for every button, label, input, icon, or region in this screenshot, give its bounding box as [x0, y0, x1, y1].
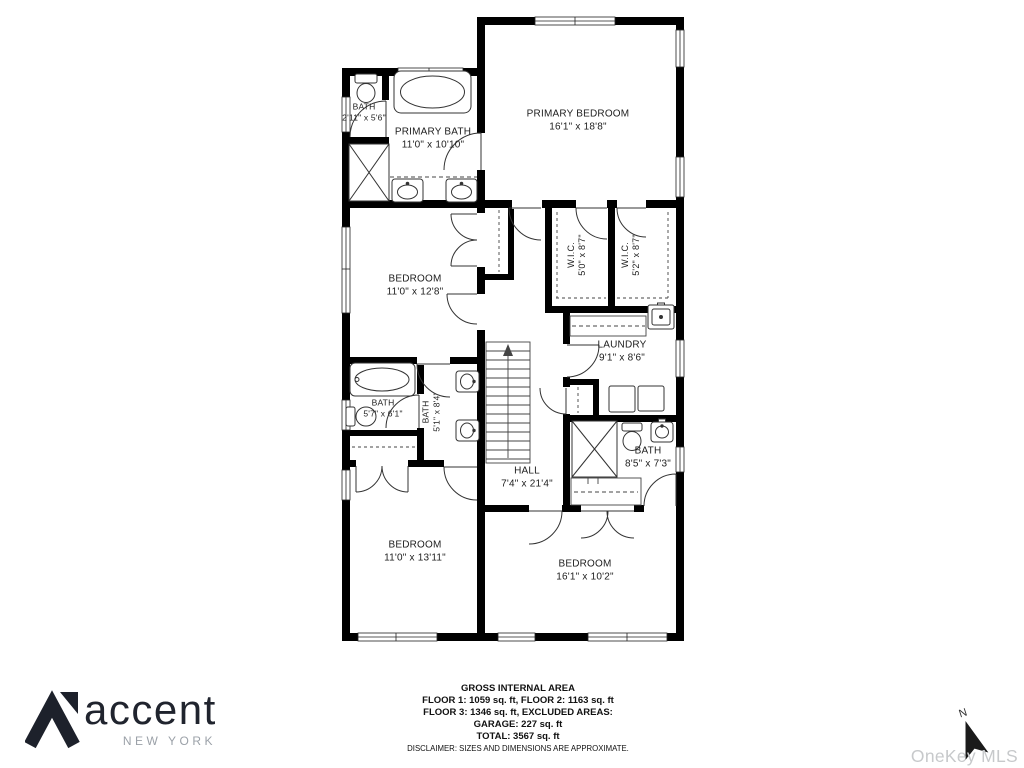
- window: [498, 633, 535, 641]
- sink-icon: [446, 179, 477, 202]
- shower-icon: [349, 144, 389, 201]
- window: [676, 447, 684, 472]
- room-label-bedroom-4: BEDROOM16'1" x 10'2": [556, 559, 613, 584]
- window: [676, 340, 684, 377]
- door: [617, 208, 646, 237]
- room-label-bath-wc: BATH2'11" x 5'6": [342, 101, 386, 122]
- area-summary: GROSS INTERNAL AREA FLOOR 1: 1059 sq. ft…: [312, 683, 724, 754]
- room-label-bath-4: BATH5'1" x 8'4": [420, 392, 441, 431]
- room-label-laundry: LAUNDRY9'1" x 8'6": [597, 340, 646, 365]
- sink-icon: [392, 179, 423, 202]
- bathtub-icon: [394, 71, 471, 113]
- brand-name: accent: [84, 688, 217, 732]
- area-summary-disclaimer: DISCLAIMER: SIZES AND DIMENSIONS ARE APP…: [312, 743, 724, 754]
- floor-plan-drawing: N: [0, 0, 1024, 768]
- door: [529, 511, 562, 544]
- closet-door: [356, 466, 382, 492]
- window: [342, 470, 350, 500]
- room-label-hall: HALL7'4" x 21'4": [501, 466, 553, 491]
- sink-icon: [456, 371, 479, 392]
- area-summary-line: FLOOR 1: 1059 sq. ft, FLOOR 2: 1163 sq. …: [312, 695, 724, 707]
- closet-door: [382, 466, 408, 492]
- dryer-icon: [638, 386, 664, 411]
- room-label-wic-2: W.I.C.5'2" x 8'7": [620, 234, 643, 276]
- door: [444, 467, 477, 500]
- window: [342, 227, 350, 313]
- window: [358, 633, 437, 641]
- sink-icon: [651, 419, 673, 442]
- room-label-bath-3: BATH5'7" x 6'1": [363, 397, 402, 418]
- room-label-bedroom-2: BEDROOM11'0" x 12'8": [387, 274, 444, 299]
- brand-subtitle: NEW YORK: [84, 734, 216, 748]
- bathtub-icon: [350, 363, 415, 396]
- window: [535, 17, 615, 25]
- laundry-sink-icon: [648, 303, 674, 329]
- closet-door: [451, 240, 477, 266]
- brand-logo: accent NEW YORK: [25, 686, 225, 756]
- floor-plan-page: N BATH2'11" x 5'6" PRIMARY BATH11'0" x 1…: [0, 0, 1024, 768]
- washer-icon: [609, 386, 635, 412]
- double-door: [607, 511, 634, 538]
- door: [447, 294, 477, 324]
- sink-icon: [456, 420, 479, 441]
- closet: [571, 478, 641, 505]
- brand-chevron-icon: [25, 686, 81, 750]
- closet-door: [451, 214, 477, 240]
- room-label-bath-5: BATH8'5" x 7'3": [625, 446, 671, 471]
- window: [676, 157, 684, 197]
- toilet-icon: [355, 74, 377, 103]
- double-door: [581, 511, 608, 538]
- area-summary-line: TOTAL: 3567 sq. ft: [312, 731, 724, 743]
- room-label-primary-bath: PRIMARY BATH11'0" x 10'10": [395, 127, 471, 152]
- window: [676, 30, 684, 67]
- area-summary-line: FLOOR 3: 1346 sq. ft, EXCLUDED AREAS:: [312, 707, 724, 719]
- room-label-bedroom-3: BEDROOM11'0" x 13'11": [384, 540, 446, 565]
- room-label-wic-1: W.I.C.5'0" x 8'7": [566, 234, 589, 276]
- mls-watermark: OneKey MLS: [900, 746, 1018, 767]
- staircase: [486, 342, 530, 463]
- window: [588, 633, 667, 641]
- door: [644, 474, 676, 506]
- compass-label: N: [957, 706, 968, 720]
- door: [567, 345, 599, 377]
- area-summary-line: GARAGE: 227 sq. ft: [312, 719, 724, 731]
- shower-icon: [572, 421, 617, 477]
- room-label-primary-bedroom: PRIMARY BEDROOM16'1" x 18'8": [527, 109, 630, 134]
- area-summary-title: GROSS INTERNAL AREA: [312, 683, 724, 695]
